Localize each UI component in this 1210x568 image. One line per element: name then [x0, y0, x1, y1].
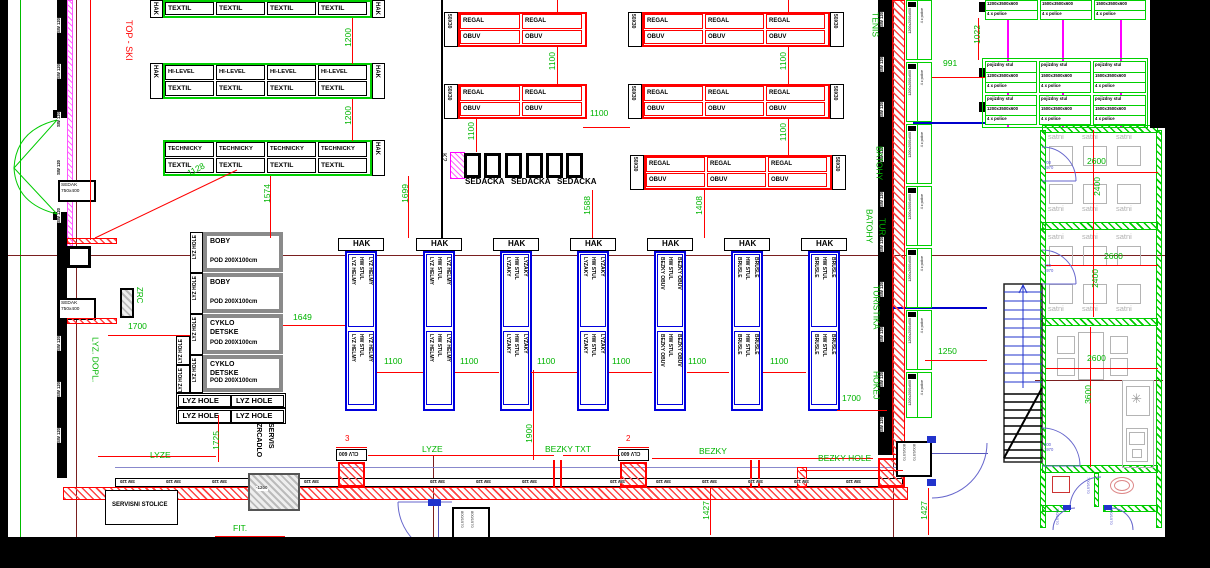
dim-line [283, 325, 345, 326]
left-wall [57, 0, 67, 110]
wc-basin-inner [1114, 480, 1130, 491]
wall-shelf-divider [917, 373, 918, 417]
rack-label: BEZKY OBUV [659, 257, 664, 290]
lyz-hole-label: LYZ HOLE [183, 397, 219, 405]
dim: 1100 [688, 357, 706, 366]
dim-line [563, 455, 620, 456]
shelf-cell-label: HI-LEVEL [219, 70, 245, 76]
stul-label: pojizdny stul [1041, 97, 1067, 101]
dim-line [788, 119, 789, 155]
satni-label: satni [1048, 233, 1064, 241]
obuv-cell-label: OBUV [710, 177, 727, 183]
green-wall [1042, 222, 1158, 230]
lyz-hole-label: LYZ HOLE [193, 317, 198, 341]
dim-line [609, 372, 652, 373]
obuv-cell-label: OBUV [708, 106, 725, 112]
mirror-elev: -1200 [256, 486, 268, 491]
label-top-ski: TOP - SKI [124, 20, 133, 61]
rack-label: HW STUL [590, 334, 595, 357]
pod-label: POD 200X100cm [210, 378, 257, 384]
regal-cell-label: REGAL [649, 161, 670, 167]
shelf-cell-label: HI-LEVEL [321, 70, 347, 76]
dim-line [788, 47, 789, 84]
obuv-cell-label: OBUV [647, 106, 664, 112]
zone-bezky-txt: BEZKY TXT [545, 445, 591, 454]
door-size: 700/1970 [1086, 477, 1090, 494]
sedacka-label: SEDACKA [557, 178, 597, 186]
shelf-cell-label: TEXTIL [270, 86, 293, 93]
sink-drain [1132, 449, 1142, 458]
locker [1117, 184, 1141, 204]
regal-cell-label: REGAL [769, 90, 790, 96]
rack-label: HW STUL [436, 334, 441, 357]
dim-line [763, 372, 806, 373]
stul-label: 4 x police [1041, 84, 1061, 88]
wall-tag-sw120: SW 120 [57, 160, 61, 175]
dim-line [368, 455, 554, 456]
stul-label: 1500x3500x600 [1041, 74, 1072, 78]
locker [1117, 146, 1141, 166]
shelf-cell-label: TEXTIL [270, 163, 293, 170]
stul-label: pojizdny stul [987, 97, 1013, 101]
dim: 1588 [583, 196, 592, 215]
wall-shelf-head [908, 64, 916, 69]
regal-cell-label: REGAL [708, 90, 729, 96]
rack-label: BEZKY OBUV [659, 334, 664, 367]
wall-tag-sw120: SW 120 [794, 479, 809, 483]
wall-tag-sw120: SW 120 [476, 479, 491, 483]
dim-line [704, 190, 705, 238]
rack-label: LYZ HELMY [428, 334, 433, 362]
stul-label: 4 x police [1096, 12, 1116, 16]
wall-tag-sw120: SW 120 [656, 479, 671, 483]
dim: 1100 [612, 357, 630, 366]
wall-tag-sw120: SW 120 [57, 18, 61, 33]
dim-line [687, 372, 729, 373]
dim: 1574 [263, 184, 272, 203]
sedacka-bench [484, 153, 501, 178]
rack-hak-label: HAK [431, 240, 448, 248]
wall-tag-sw120: SW 120 [57, 64, 61, 79]
green-wall [1094, 473, 1099, 507]
dim: 2400 [1093, 177, 1102, 196]
lyz-hole-label: LYZ HOLE [179, 368, 184, 392]
regal-cell-label: REGAL [463, 90, 484, 96]
locker [1117, 284, 1141, 304]
wall-shelf-size: 1200x2000x600 [909, 132, 913, 158]
regal-cell-label: REGAL [647, 90, 668, 96]
wall-shelf-police: 4 x police [921, 132, 925, 147]
wall-shelf-size: 1200x2000x600 [909, 256, 913, 282]
wall-tag-sw120: SW 120 [57, 336, 61, 351]
rack-label: BRUSLE [813, 257, 818, 278]
rack-label: HW STUL [667, 334, 672, 357]
shelf-endcap-hak-label: HAK [152, 65, 158, 78]
satni-label: satni [1082, 233, 1098, 241]
sedacka-bench [526, 153, 543, 178]
dim-line [108, 335, 190, 336]
pod-label: DETSKE [210, 370, 238, 377]
rack-label: HW STUL [590, 257, 595, 280]
wall-tag-sw120: SW 120 [610, 479, 625, 483]
stul-label: 1200x3500x600 [987, 2, 1018, 6]
dim-line [455, 372, 499, 373]
regal-cell-label: REGAL [771, 161, 792, 167]
wall-tag-sw120: SW 120 [212, 479, 227, 483]
rack-label: LYZ HELMY [367, 257, 372, 285]
wall-shelf-size: 1200x2000x600 [909, 70, 913, 96]
wall-tag-sw120: SW 120 [880, 237, 884, 252]
lyz-hole-label: LYZ HOLE [236, 412, 272, 420]
dim: 1100 [779, 123, 788, 141]
satni-label: satni [1082, 205, 1098, 213]
stul-label: 1500x3500x600 [1095, 107, 1126, 111]
stul-label: 1200x3500x600 [987, 74, 1018, 78]
door-size: 7001970 [1044, 264, 1053, 274]
chair [1057, 358, 1075, 376]
zone-lyz-dopl: LYZ. DOPL. [91, 337, 100, 382]
sedak-label: SEDAK750x400 [61, 183, 79, 195]
pod-label: CYKLO [210, 361, 235, 368]
wall-shelf-divider [917, 1, 918, 59]
clv-label: CLV 600 [339, 450, 358, 455]
regal-endcap-label: 50X30 [630, 14, 635, 28]
frame-top-right [1150, 0, 1165, 128]
regal-cell-label: REGAL [525, 18, 546, 24]
zrcadlo-label: ZRCADLO [255, 423, 262, 457]
regal-endcap-label: 50X30 [630, 86, 635, 100]
rack-label: LYZ HELMY [428, 257, 433, 285]
rack-label: HW STUL [744, 334, 749, 357]
door-size: 8001970 [1044, 443, 1053, 453]
drawing-layer: SW 120SW 120SW 120SW 120SW 120SW 120SW 1… [0, 0, 1210, 568]
chair [1057, 336, 1075, 354]
regal-cell-label: REGAL [708, 18, 729, 24]
dim-line [533, 370, 534, 460]
dim: 1100 [779, 52, 788, 70]
wall-tag-sw120: SW 120 [880, 327, 884, 342]
right-wall-hatch [892, 0, 905, 455]
dim: 1100 [590, 109, 608, 118]
wall-shelf-head [908, 250, 916, 255]
obuv-cell-label: OBUV [463, 106, 480, 112]
stul-label: 4 x police [1095, 117, 1115, 121]
door-size: 800/1970 [470, 511, 474, 528]
stul-label: 1200x3500x600 [987, 107, 1018, 111]
wall-tag-sw120: SW 120 [430, 479, 445, 483]
clv-label: CLV 600 [621, 450, 640, 455]
rack-label: LYZAKY [505, 334, 510, 354]
shelf-cell-label: TEXTIL [219, 86, 242, 93]
obuv-cell-label: OBUV [525, 34, 542, 40]
pillar [338, 462, 365, 487]
frame-bottom [0, 537, 1210, 568]
mirror-servis-box [248, 473, 300, 511]
bottom-wall-strip [115, 478, 903, 487]
shelf-cell-label: HI-LEVEL [270, 70, 296, 76]
stul-label: 4 x police [1041, 117, 1061, 121]
rack-hak-label: HAK [585, 240, 602, 248]
shelf-cell-label: TECHNICKY [270, 147, 304, 153]
regal-endcap-label: 50X30 [632, 157, 637, 171]
zrc-mirror [120, 288, 134, 318]
dim: 1427 [920, 501, 929, 520]
wall-shelf-divider [917, 187, 918, 245]
zone-tur: TUR [878, 218, 887, 235]
wall-tag-sw120: SW 120 [57, 428, 61, 443]
door-size: 700/1970 [1055, 508, 1059, 525]
dim: 2600 [1087, 354, 1106, 363]
zrcadlo-label: SERVIS [267, 423, 274, 449]
lyz-hole-label: LYZ HOLE [183, 412, 219, 420]
regal-cell-label: REGAL [525, 90, 546, 96]
red-bar [553, 460, 555, 487]
wall-tag-sw120: SW 120 [304, 479, 319, 483]
rack-label: BRUSLE [830, 257, 835, 278]
wall-shelf-head [908, 188, 916, 193]
rack-hak-label: HAK [353, 240, 370, 248]
obuv-cell-label: OBUV [769, 34, 786, 40]
regal-cell-label: REGAL [463, 18, 484, 24]
dim-line [476, 119, 477, 152]
wall-shelf-police: 4 x police [921, 318, 925, 333]
rack-label: HW STUL [821, 257, 826, 280]
regal-endcap-label: 50X30 [832, 86, 837, 100]
regal-endcap-label: 50X30 [446, 86, 451, 100]
shelf-endcap-hak-label: HAK [374, 65, 380, 78]
dim: 1700 [128, 322, 147, 331]
dim: 1725 [212, 431, 221, 450]
stul-label: 4 x police [1042, 12, 1062, 16]
rack-label: BRUSLE [813, 334, 818, 355]
wc-sink [1052, 476, 1070, 493]
satni-label: satni [1048, 133, 1064, 141]
wall-shelf-police: 4 x police [921, 70, 925, 85]
obuv-cell-label: OBUV [649, 177, 666, 183]
dim: 1100 [548, 52, 557, 70]
dim: 1100 [460, 357, 478, 366]
red-wall-stub [67, 238, 117, 244]
satni-label: satni [1116, 233, 1132, 241]
satni-label: satni [1082, 305, 1098, 313]
wall-tag-sw120: SW 120 [57, 208, 61, 223]
dim: 1100 [467, 122, 476, 140]
wall-tag-sw120: SW 120 [702, 479, 717, 483]
blue-baseline [115, 467, 905, 468]
stul-label: 4 x police [987, 84, 1007, 88]
dim-line [925, 360, 987, 361]
shelf-cell-label: HI-LEVEL [168, 70, 194, 76]
shelf-endcap-hak-label: HAK [152, 2, 158, 15]
shelf-endcap-hak-label: HAK [374, 142, 380, 155]
wall-tag-sw120: SW 120 [880, 417, 884, 432]
dim: 1408 [695, 196, 704, 215]
wall-shelf-size: 1200x2000x600 [909, 194, 913, 220]
wall-tag-sw120: SW 120 [880, 57, 884, 72]
dim: 1250 [938, 347, 957, 356]
floor-plan-canvas[interactable]: SW 120SW 120SW 120SW 120SW 120SW 120SW 1… [0, 0, 1210, 568]
dim: 1100 [384, 357, 402, 366]
rack-hak-label: HAK [816, 240, 833, 248]
dim-line [531, 372, 577, 373]
rack-label: HW STUL [821, 334, 826, 357]
dim-line [557, 0, 558, 12]
satni-label: satni [1116, 305, 1132, 313]
zone-bezky-hole: BEZKY HOLE [818, 454, 871, 463]
zone-fit: FIT. [233, 524, 247, 533]
rack-label: LYZAKY [505, 257, 510, 277]
wall-tag-sw120: SW 120 [57, 382, 61, 397]
chair [1110, 358, 1128, 376]
rack-label: LYZAKY [599, 334, 604, 354]
sedak-label: SEDAK750x400 [61, 301, 79, 313]
dim: 3600 [1084, 385, 1093, 404]
obuv-cell-label: OBUV [525, 106, 542, 112]
dim: 991 [943, 59, 957, 68]
obuv-cell-label: OBUV [647, 34, 664, 40]
satni-label: satni [1048, 305, 1064, 313]
wall-shelf-size: 1200x2000x600 [909, 318, 913, 344]
rack-label: HW STUL [513, 334, 518, 357]
stul-label: 4 x police [987, 12, 1007, 16]
wall-shelf-head [908, 126, 916, 131]
red-wall-stub [67, 318, 117, 324]
locker [1049, 284, 1073, 304]
rack-label: LYZAKY [522, 257, 527, 277]
dim: 1200 [344, 106, 353, 125]
dim-line [932, 77, 985, 78]
wall-tag-sw120: SW 120 [166, 479, 181, 483]
lyz-hole-label: LYZ HOLE [193, 358, 198, 382]
label-k2: K2 [440, 153, 447, 162]
pod-label: POD 200X100cm [210, 340, 257, 346]
dim-line [1046, 172, 1158, 173]
k2-cage [450, 152, 465, 179]
partition-line [441, 0, 443, 240]
sedacka-bench [546, 153, 563, 178]
rack-label: LYZAKY [599, 257, 604, 277]
rack-label: LYZ HELMY [350, 257, 355, 285]
rack-label: LYZ HELMY [367, 334, 372, 362]
rack-label: BRUSLE [736, 257, 741, 278]
wall-shelf-head [908, 374, 916, 379]
shelf-cell-label: TEXTIL [219, 163, 242, 170]
wall-tag-sw120: SW 120 [880, 102, 884, 117]
pod-label: POD 200X100cm [210, 299, 257, 305]
stul-label: 4 x police [987, 117, 1007, 121]
stul-label: 1500x3500x600 [1042, 2, 1073, 6]
wall-tag-sw120: SW 120 [880, 192, 884, 207]
door-size: 700/1970 [1109, 508, 1113, 525]
dim-line [336, 447, 367, 448]
dim-line [1046, 265, 1158, 266]
pod-label: DETSKE [210, 329, 238, 336]
wall-tag-sw120: SW 120 [120, 479, 135, 483]
chair [1110, 336, 1128, 354]
stul-label: 1500x3500x600 [1096, 2, 1127, 6]
dim: 1100 [770, 357, 788, 366]
dim-line [583, 127, 630, 128]
rack-label: BRUSLE [753, 257, 758, 278]
shelf-cell-label: TEXTIL [168, 86, 191, 93]
dim: 1427 [702, 501, 711, 520]
sedacka-bench [464, 153, 481, 178]
sedacka-bench [566, 153, 583, 178]
pod-label: BOBY [210, 279, 230, 286]
dim-line [1046, 368, 1158, 369]
rack-label: HW STUL [358, 257, 363, 280]
left-green-line [20, 0, 21, 537]
regal-cell-label: REGAL [647, 18, 668, 24]
wall-tag-sw120: SW 120 [880, 12, 884, 27]
shelf-cell-label: TECHNICKY [168, 147, 202, 153]
dim: 1200 [344, 28, 353, 47]
shelf-cell-label: TEXTIL [219, 6, 242, 13]
door-size: 800/1970 [902, 444, 906, 461]
lyz-hole-label: LYZ HOLE [193, 235, 198, 259]
dim-line [800, 470, 903, 471]
dim: 2600 [1104, 252, 1123, 261]
wall-shelf-police: 4 x police [921, 256, 925, 271]
stul-label: pojizdny stul [1095, 97, 1121, 101]
dim-line [90, 0, 91, 240]
regal-cell-label: REGAL [710, 161, 731, 167]
magenta-wall-strip [67, 0, 73, 250]
locker [1049, 184, 1073, 204]
stul-label: pojizdny stul [1095, 63, 1121, 67]
zone-lyze: LYZE [150, 451, 171, 460]
rack-label: BRUSLE [736, 334, 741, 355]
obuv-cell-label: OBUV [769, 106, 786, 112]
dim: 1649 [293, 313, 312, 322]
wall-shelf-size: 1200x2000x600 [909, 380, 913, 406]
shelf-cell-label: TECHNICKY [321, 147, 355, 153]
pillar-num: 2 [626, 435, 630, 443]
rack-label: BEZKY OBUV [676, 257, 681, 290]
rack-hak-label: HAK [508, 240, 525, 248]
dim-line [592, 190, 593, 238]
rack-label: HW STUL [436, 257, 441, 280]
dim: 1900 [525, 424, 534, 443]
zone-turistika: TURISTIKA [872, 285, 881, 329]
shelf-cell-label: TECHNICKY [219, 147, 253, 153]
shelf-endcap-hak-label: HAK [374, 2, 380, 15]
regal-endcap-label: 50X30 [446, 14, 451, 28]
door-size: 800/1970 [912, 444, 916, 461]
wall-shelf-police: 4 x police [921, 194, 925, 209]
stul-label: pojizdny stul [1041, 63, 1067, 67]
lyz-hole-label: LYZ HOLE [236, 397, 272, 405]
rack-hak-label: HAK [662, 240, 679, 248]
pod-label: CYKLO [210, 320, 235, 327]
stul-label: pojizdny stul [987, 63, 1013, 67]
dim: 1700 [842, 394, 861, 403]
dim: 2400 [1091, 269, 1100, 288]
dim: 2600 [1087, 157, 1106, 166]
wall-shelf-divider [917, 311, 918, 369]
rack-hak-label: HAK [739, 240, 756, 248]
rack-label: BRUSLE [753, 334, 758, 355]
wall-shelf-size: 1200x2000x600 [909, 8, 913, 34]
frame-left [0, 0, 8, 568]
regal-endcap-label: 50X30 [834, 157, 839, 171]
pod-label: POD 200X100cm [210, 258, 257, 264]
rack-label: LYZAKY [522, 334, 527, 354]
sedacka-bench [505, 153, 522, 178]
shelf-cell-label: TEXTIL [321, 163, 344, 170]
rack-label: LYZ HELMY [350, 334, 355, 362]
wall-tag-sw120: SW 120 [748, 479, 763, 483]
